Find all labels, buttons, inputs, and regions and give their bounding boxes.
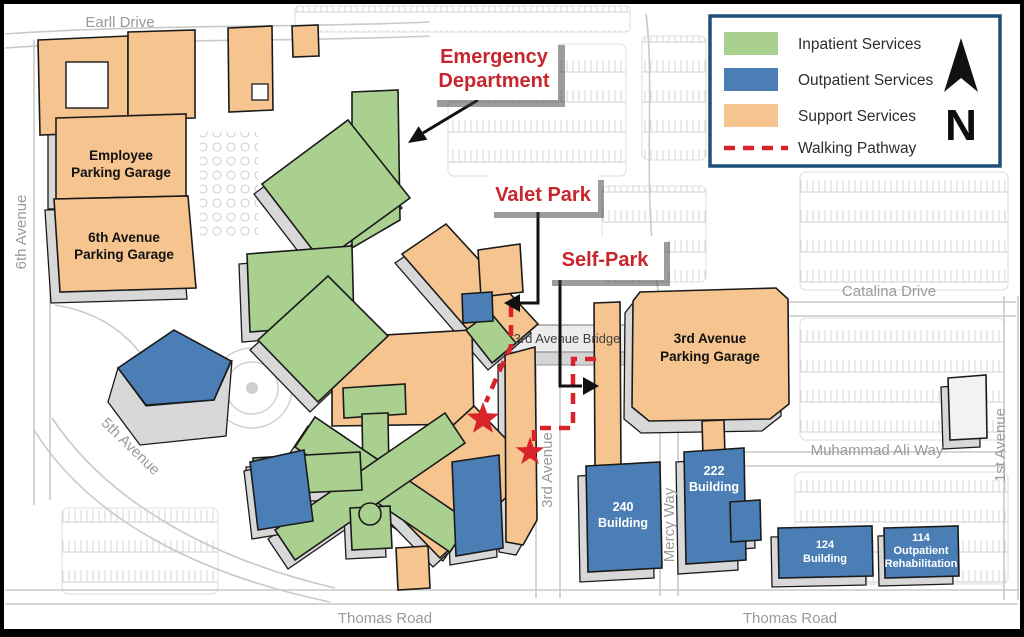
street-label-3rd-avenue: 3rd Avenue	[539, 432, 556, 508]
svg-text:Outpatient: Outpatient	[894, 545, 949, 557]
svg-text:Valet Park: Valet Park	[495, 184, 592, 206]
building-rotunda	[359, 503, 381, 525]
inpatient-swatch-icon	[724, 32, 778, 55]
building-valet-block	[478, 244, 523, 297]
legend: Inpatient Services Outpatient Services S…	[710, 16, 1000, 166]
svg-text:114: 114	[912, 532, 931, 544]
building-124	[778, 526, 873, 578]
svg-text:Building: Building	[803, 553, 847, 565]
legend-item-inpatient: Inpatient Services	[724, 32, 921, 55]
svg-text:Employee: Employee	[89, 148, 153, 163]
building-north-slab	[128, 30, 195, 120]
building-white	[948, 375, 987, 440]
callout-valet-park: Valet Park	[488, 174, 604, 218]
campus-map: 3rd Avenue Bridge Employee Parking Garag…	[0, 0, 1024, 637]
street-label-1st-avenue: 1st Avenue	[992, 408, 1009, 482]
street-label-mercy-way: Mercy Way	[661, 487, 678, 562]
svg-text:3rd Avenue: 3rd Avenue	[674, 331, 747, 346]
svg-text:6th Avenue: 6th Avenue	[88, 230, 160, 245]
svg-text:Parking Garage: Parking Garage	[74, 247, 174, 262]
svg-text:Emergency: Emergency	[440, 46, 549, 68]
callout-emergency-department: Emergency Department	[430, 38, 565, 107]
street-label-earll-drive: Earll Drive	[85, 14, 154, 31]
svg-text:240: 240	[613, 500, 634, 514]
outpatient-swatch-icon	[724, 68, 778, 91]
building-222-annex	[730, 500, 761, 542]
street-label-6th-avenue: 6th Avenue	[13, 195, 30, 270]
building-valet-small	[462, 292, 493, 323]
svg-text:Department: Department	[438, 70, 549, 92]
street-label-thomas-road-east: Thomas Road	[743, 610, 837, 627]
callout-self-park: Self-Park	[546, 236, 670, 286]
map-border-bottom	[0, 629, 1024, 637]
svg-text:222: 222	[704, 464, 725, 478]
svg-text:Support Services: Support Services	[798, 108, 916, 125]
bridge-label: 3rd Avenue Bridge	[514, 331, 621, 346]
support-swatch-icon	[724, 104, 778, 127]
street-label-catalina-drive: Catalina Drive	[842, 283, 936, 300]
north-label: N	[945, 101, 977, 150]
svg-text:124: 124	[816, 539, 835, 551]
legend-item-support: Support Services	[724, 104, 916, 127]
legend-item-outpatient: Outpatient Services	[724, 68, 934, 91]
building-small-b	[292, 25, 319, 57]
street-label-thomas-road-west: Thomas Road	[338, 610, 432, 627]
svg-text:Building: Building	[598, 516, 648, 530]
street-label-muhammad-ali-way: Muhammad Ali Way	[811, 442, 944, 459]
building-se-outpatient	[452, 455, 503, 556]
svg-text:Inpatient Services: Inpatient Services	[798, 36, 921, 53]
svg-text:Parking Garage: Parking Garage	[660, 349, 760, 364]
building-bottom-small	[396, 546, 430, 590]
svg-text:Rehabilitation: Rehabilitation	[885, 558, 958, 570]
building-sw-outpatient	[250, 450, 313, 530]
svg-text:Outpatient Services: Outpatient Services	[798, 72, 934, 89]
svg-text:Building: Building	[689, 480, 739, 494]
svg-text:Self-Park: Self-Park	[562, 249, 650, 271]
svg-text:Walking Pathway: Walking Pathway	[798, 140, 917, 157]
svg-text:Parking Garage: Parking Garage	[71, 165, 171, 180]
